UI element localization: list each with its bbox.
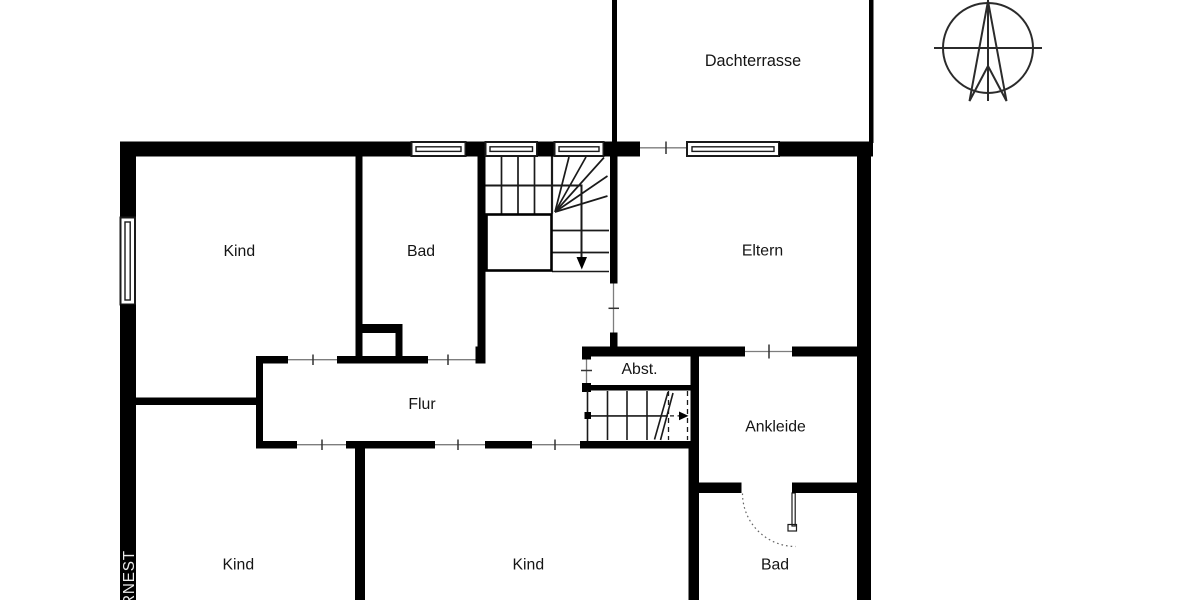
svg-text:Eltern: Eltern bbox=[742, 243, 783, 260]
svg-text:Kind: Kind bbox=[223, 243, 255, 260]
svg-text:Flur: Flur bbox=[408, 396, 435, 413]
svg-text:Dachterrasse: Dachterrasse bbox=[705, 52, 801, 70]
svg-text:RNEST: RNEST bbox=[121, 550, 138, 600]
svg-text:Kind: Kind bbox=[512, 557, 544, 574]
svg-text:Bad: Bad bbox=[761, 557, 789, 574]
svg-text:Abst.: Abst. bbox=[622, 361, 658, 378]
svg-text:Bad: Bad bbox=[407, 243, 435, 260]
svg-text:Ankleide: Ankleide bbox=[745, 419, 806, 436]
svg-text:Kind: Kind bbox=[222, 557, 254, 574]
